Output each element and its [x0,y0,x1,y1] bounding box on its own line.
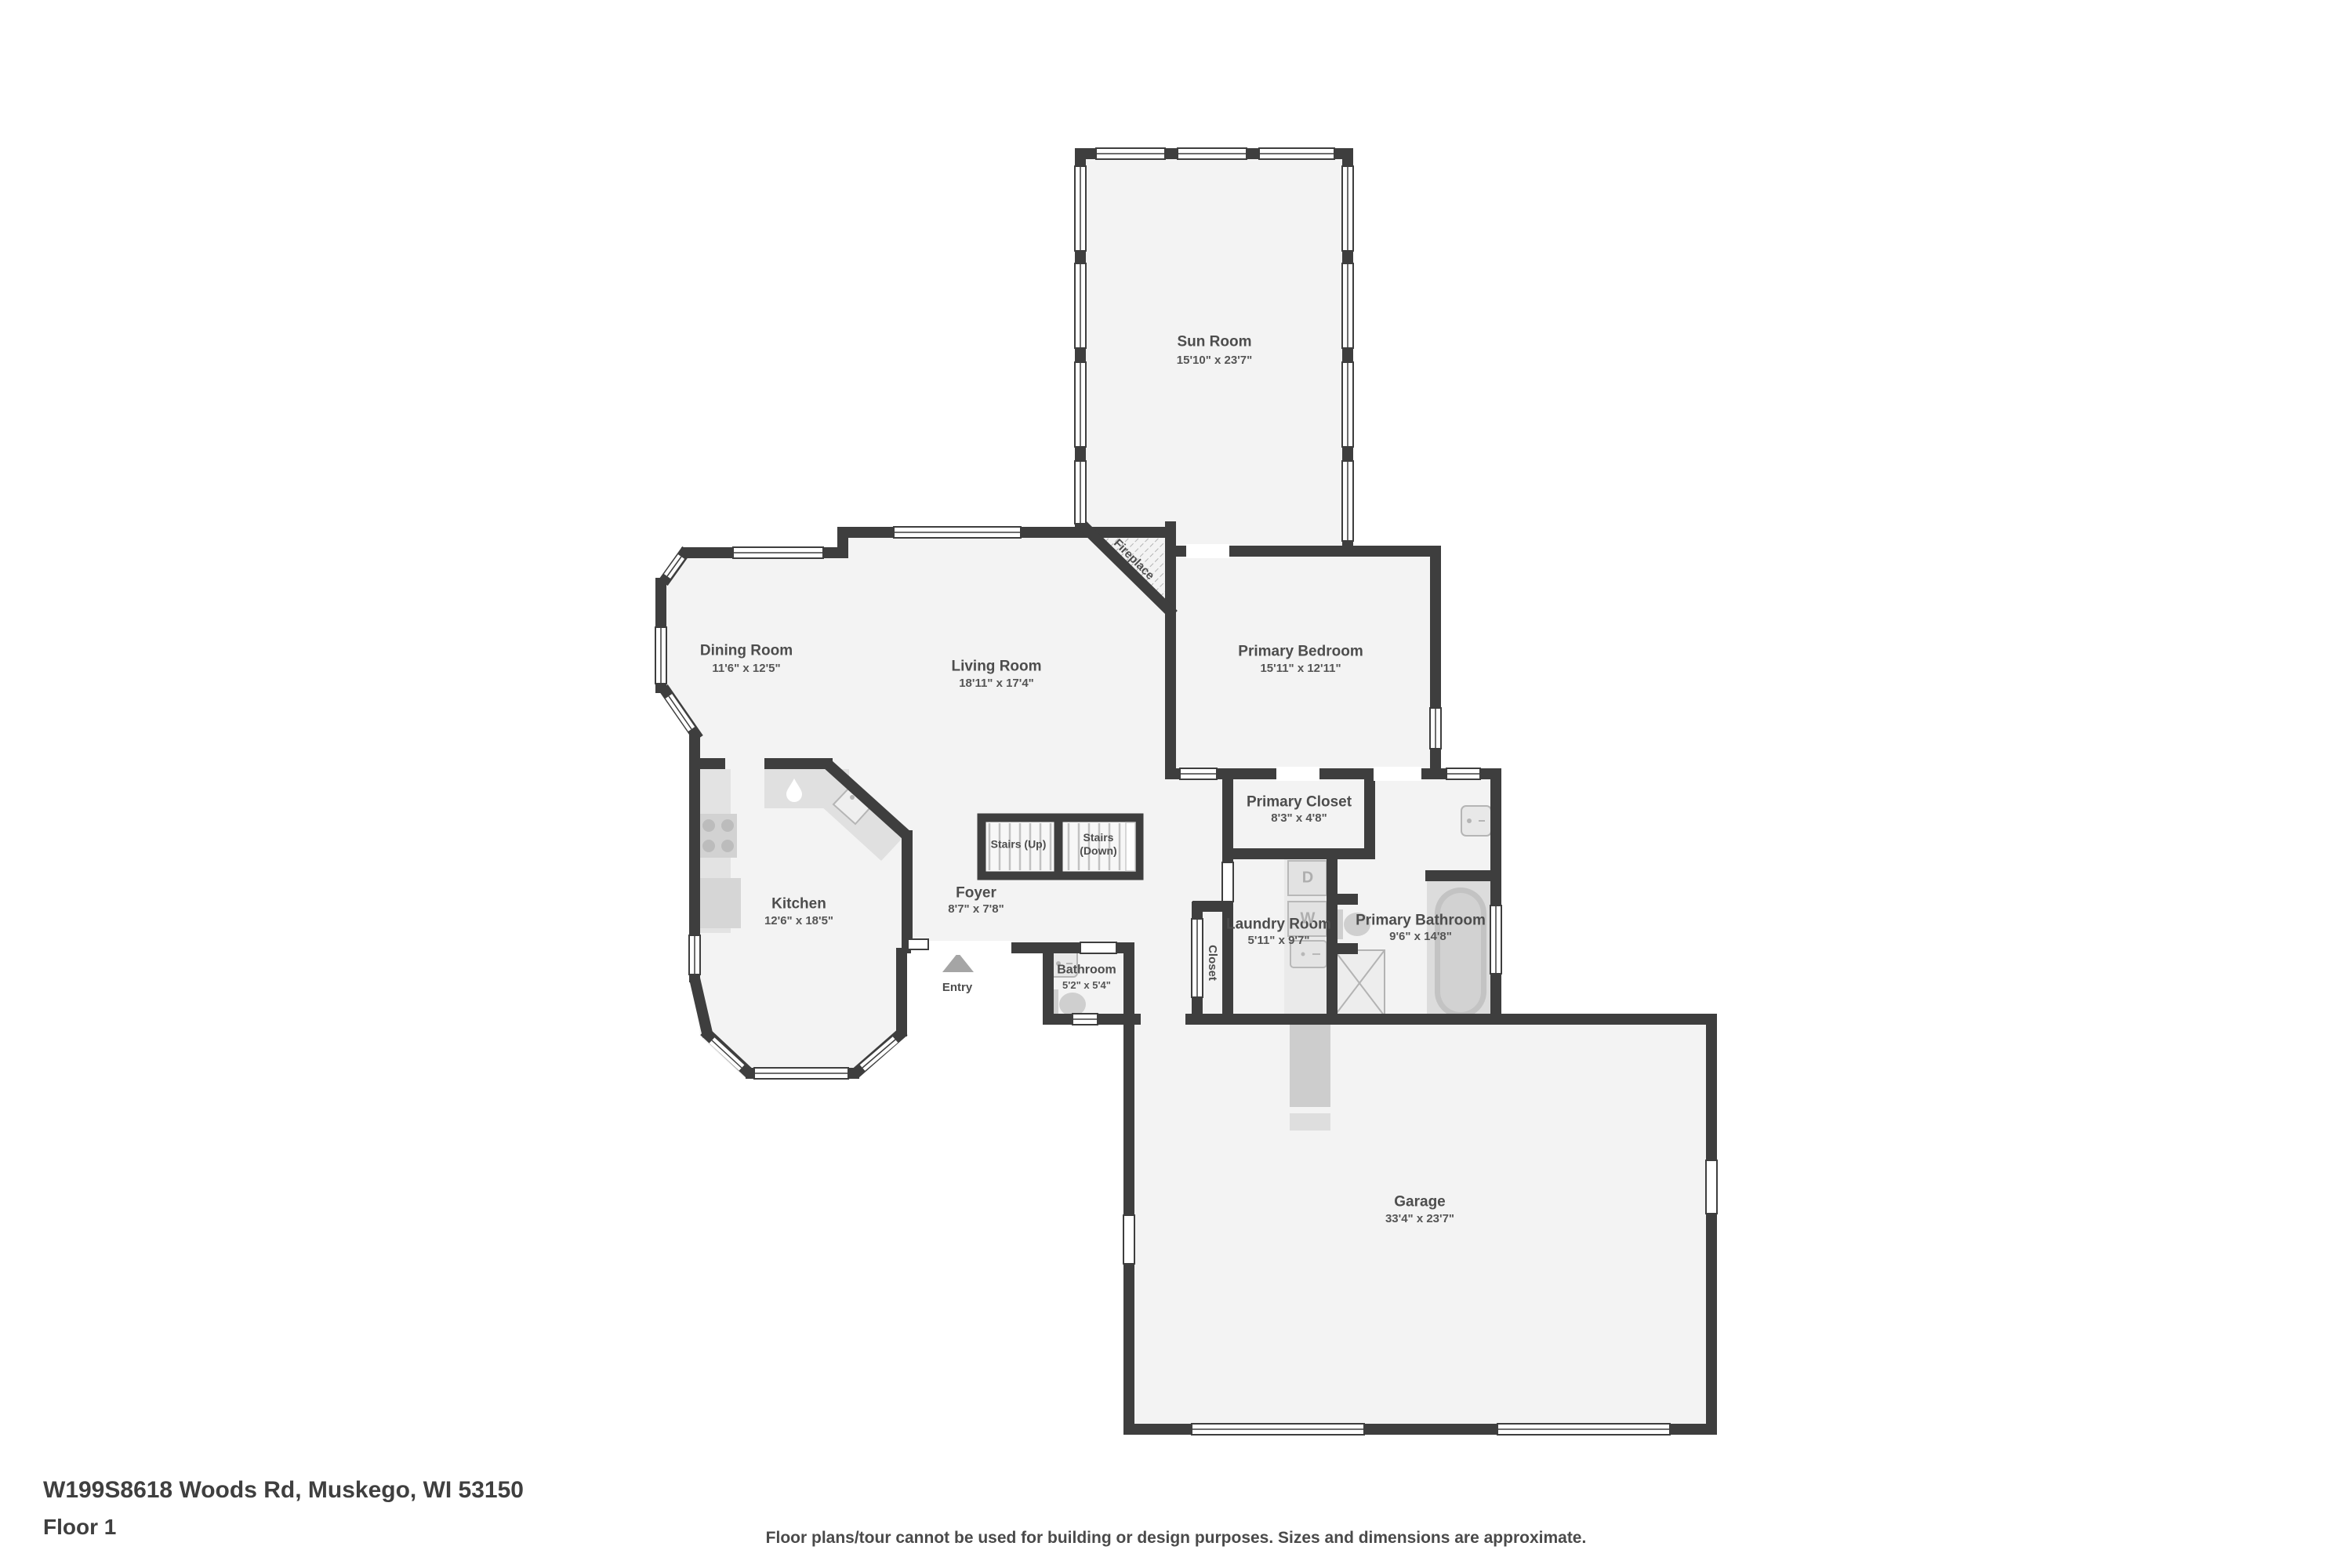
room-dims-living-room: 18'11" x 17'4" [959,677,1034,691]
room-label-foyer: Foyer [956,885,996,903]
sink-icon [1461,806,1491,836]
room-label-sun-room: Sun Room [1178,334,1252,352]
room-label-primary-closet: Primary Closet [1247,794,1352,812]
room-dims-primary-bathroom: 9'6" x 14'8" [1389,930,1452,944]
stairs-landing [1126,822,1135,871]
floor-plan-page: Sun Room 15'10" x 23'7" Dining Room 11'6… [0,0,2352,1568]
room-dims-dining-room: 11'6" x 12'5" [712,662,780,676]
room-dims-primary-bedroom: 15'11" x 12'11" [1260,662,1341,676]
room-label-primary-bedroom: Primary Bedroom [1238,644,1363,662]
room-dims-sun-room: 15'10" x 23'7" [1177,354,1252,368]
room-label-garage: Garage [1394,1194,1445,1212]
room-label-dining-room: Dining Room [700,643,793,661]
entry-arrow-icon [942,953,974,972]
room-label-bathroom: Bathroom [1057,962,1116,977]
room-label-kitchen: Kitchen [771,896,826,914]
washer-letter: W [1301,910,1316,928]
floor-label: Floor 1 [43,1515,116,1540]
room-label-living-room: Living Room [951,659,1041,677]
stairs-down-line2: (Down) [1080,844,1116,858]
room-dims-laundry-room: 5'11" x 9'7" [1248,934,1310,948]
room-label-laundry-room: Laundry Room [1226,916,1331,935]
room-label-primary-bathroom: Primary Bathroom [1356,913,1486,931]
closet-label: Closet [1205,945,1219,981]
room-dims-primary-closet: 8'3" x 4'8" [1271,811,1327,826]
floor-plan-drawing [0,0,2352,1568]
dryer-letter: D [1302,869,1313,887]
entry-label: Entry [942,981,972,995]
refrigerator-icon [696,878,741,928]
address-text: W199S8618 Woods Rd, Muskego, WI 53150 [43,1477,524,1504]
room-dims-garage: 33'4" x 23'7" [1385,1212,1454,1226]
furnace-icon [1290,1019,1330,1107]
stairs-down-label: Stairs (Down) [1080,831,1116,858]
room-dims-kitchen: 12'6" x 18'5" [764,914,833,928]
room-dims-foyer: 8'7" x 7'8" [948,902,1004,916]
stairs-up-label: Stairs (Up) [991,838,1047,851]
stairs-down-line1: Stairs [1080,831,1116,844]
room-dims-bathroom: 5'2" x 5'4" [1062,979,1111,992]
disclaimer-text: Floor plans/tour cannot be used for buil… [766,1529,1587,1548]
laundry-fixtures [1284,858,1330,1131]
